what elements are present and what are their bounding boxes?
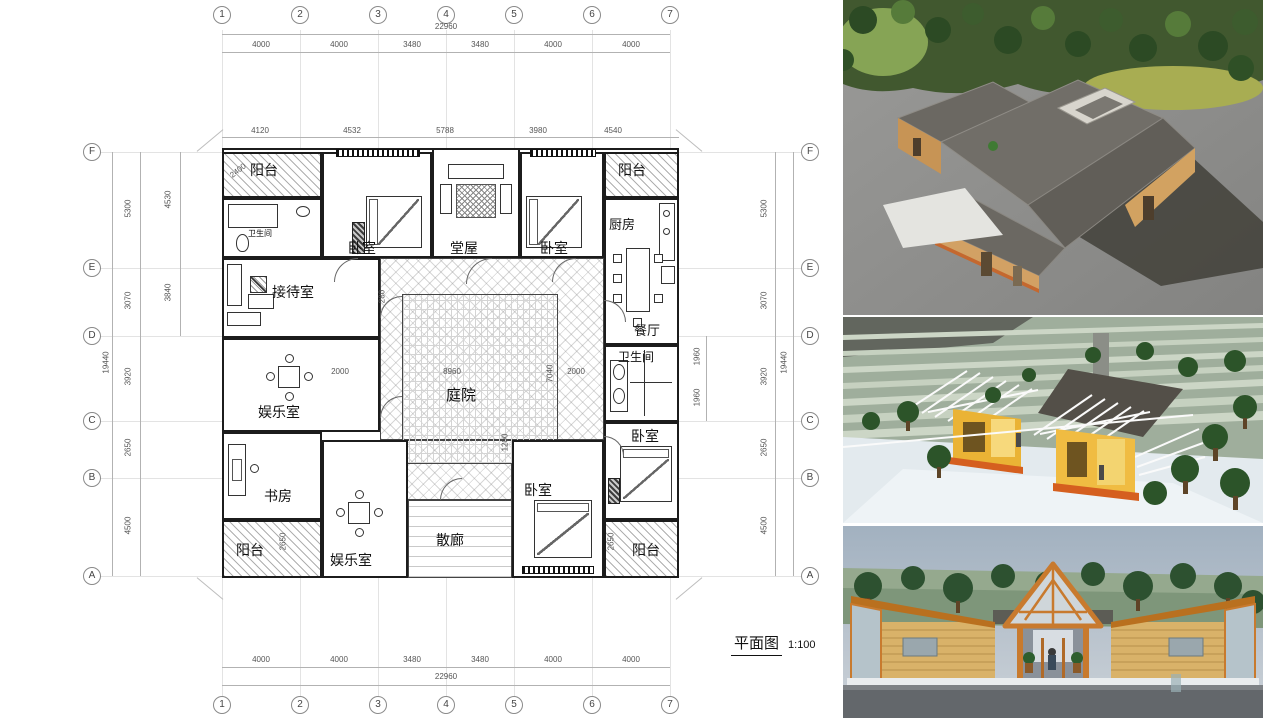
chair: [285, 392, 294, 401]
dim-line: [793, 152, 794, 576]
desk: [228, 444, 246, 496]
kitchen-sink: [661, 266, 675, 284]
chair: [374, 508, 383, 517]
grid-bubble-top-1: 1: [213, 6, 231, 24]
dim-top-seg: 4000: [319, 40, 359, 49]
grid-bubble-bottom-1: 1: [213, 696, 231, 714]
chair: [336, 508, 345, 517]
drawing-title: 平面图: [731, 632, 782, 656]
dim-top-inner: 4532: [332, 126, 372, 135]
room-label-bath-tl: 卫生间: [248, 228, 272, 239]
elevation-render-graphic: [843, 526, 1263, 718]
room-label-bedroom-ne: 卧室: [540, 238, 568, 258]
dim-line: [180, 152, 181, 336]
dim-top-inner: 5788: [425, 126, 465, 135]
window: [336, 149, 420, 157]
dim-line: [706, 336, 707, 421]
dim-courtyard-right: 2000: [556, 367, 596, 376]
dim-line: [222, 34, 670, 35]
grid-bubble-right-C: C: [801, 412, 819, 430]
dim-bottom-seg: 4000: [241, 655, 281, 664]
grid-bubble-top-3: 3: [369, 6, 387, 24]
room-label-balcony-bl: 阳台: [236, 540, 264, 560]
dim-top-seg: 3480: [392, 40, 432, 49]
grid-bubble-top-2: 2: [291, 6, 309, 24]
room-label-reception: 接待室: [272, 282, 314, 302]
coffee-table: [248, 294, 274, 309]
dim-top-inner: 3980: [518, 126, 558, 135]
chair: [285, 354, 294, 363]
dim-top-inner: 4120: [240, 126, 280, 135]
dim-line: [222, 137, 679, 138]
room-label-bedroom-e: 卧室: [631, 426, 659, 446]
sofa: [500, 184, 512, 214]
corner-tick: [197, 577, 224, 600]
room-label-study: 书房: [264, 486, 292, 506]
dim-right-seg: 5300: [760, 189, 769, 229]
dim-right-seg: 3070: [760, 281, 769, 321]
dim-top-seg: 3480: [460, 40, 500, 49]
dim-left-total: 19440: [102, 343, 111, 383]
dim-top-inner: 4540: [593, 126, 633, 135]
bath-partition: [630, 382, 672, 383]
dim-top-seg: 4000: [533, 40, 573, 49]
chair: [613, 254, 622, 263]
grid-bubble-bottom-5: 5: [505, 696, 523, 714]
dim-right-inner: 1960: [693, 337, 702, 377]
dim-line: [222, 52, 670, 53]
pavilion-render-graphic: [843, 317, 1263, 523]
sofa: [448, 164, 504, 179]
sink: [296, 206, 310, 217]
dim-right-seg: 2650: [760, 428, 769, 468]
dim-courtyard-top: 280: [378, 277, 387, 317]
dim-line: [222, 685, 670, 686]
dim-line: [222, 667, 670, 668]
dim-right-seg: 3920: [760, 357, 769, 397]
room-label-dining: 餐厅: [634, 320, 660, 339]
dim-left-seg: 5300: [124, 189, 133, 229]
dim-line: [775, 152, 776, 576]
room-label-corridor: 散廊: [436, 530, 464, 550]
chair: [355, 490, 364, 499]
dim-bottom-seg: 4000: [611, 655, 651, 664]
dim-courtyard-width: 8960: [432, 367, 472, 376]
corner-tick: [197, 129, 224, 152]
grid-bubble-right-B: B: [801, 469, 819, 487]
window: [522, 566, 594, 574]
room-label-balcony-br: 阳台: [632, 540, 660, 560]
dim-left-seg: 3070: [124, 281, 133, 321]
grid-bubble-left-A: A: [83, 567, 101, 585]
dim-left-seg: 2650: [124, 428, 133, 468]
sofa: [440, 184, 452, 214]
rug: [608, 478, 620, 504]
grid-bubble-left-D: D: [83, 327, 101, 345]
chair: [654, 254, 663, 263]
room-label-bedroom-nw: 卧室: [348, 238, 376, 258]
burner: [663, 210, 670, 217]
render-front-elevation: [843, 526, 1263, 718]
grid-bubble-left-B: B: [83, 469, 101, 487]
presentation-sheet: 1 2 3 4 5 6 7 22960 4000 4000 3480 3480 …: [0, 0, 1280, 720]
sofa: [227, 264, 242, 306]
bed: [534, 500, 592, 558]
dim-bottom-seg: 3480: [392, 655, 432, 664]
game-table: [348, 502, 370, 524]
chair: [613, 274, 622, 283]
dim-left-inner: 4530: [164, 180, 173, 220]
courtyard-paving: [402, 294, 558, 464]
room-label-balcony-tr: 阳台: [618, 160, 646, 180]
dim-right-inner: 1960: [693, 378, 702, 418]
room-label-kitchen: 厨房: [609, 214, 635, 233]
grid-bubble-bottom-2: 2: [291, 696, 309, 714]
bed: [620, 446, 672, 502]
dim-courtyard-left: 2000: [320, 367, 360, 376]
dim-bottom-total: 22960: [426, 672, 466, 681]
grid-bubble-bottom-4: 4: [437, 696, 455, 714]
grid-bubble-bottom-3: 3: [369, 696, 387, 714]
render-timber-frame-pavilions: [843, 317, 1263, 523]
chair: [304, 372, 313, 381]
room-label-game-w: 娱乐室: [258, 402, 300, 422]
chair: [250, 464, 259, 473]
hall-rug: [456, 184, 496, 218]
tv-cabinet: [250, 276, 267, 293]
grid-bubble-right-E: E: [801, 259, 819, 277]
room-label-bath-e: 卫生间: [618, 348, 654, 365]
sink: [613, 364, 625, 380]
dim-right-seg: 4500: [760, 506, 769, 546]
dim-line: [140, 152, 141, 576]
grid-bubble-bottom-6: 6: [583, 696, 601, 714]
shower: [228, 204, 278, 228]
dim-right-total: 19440: [780, 343, 789, 383]
aerial-render-graphic: [843, 0, 1263, 315]
sofa: [227, 312, 261, 326]
room-label-hall: 堂屋: [450, 238, 478, 258]
room-label-courtyard: 庭院: [446, 384, 476, 405]
chair: [654, 294, 663, 303]
dim-top-seg: 4000: [611, 40, 651, 49]
grid-bubble-right-F: F: [801, 143, 819, 161]
chair: [266, 372, 275, 381]
corner-tick: [676, 577, 703, 600]
dim-bottom-seg: 4000: [319, 655, 359, 664]
grid-bubble-right-D: D: [801, 327, 819, 345]
sink: [613, 388, 625, 404]
chair: [355, 528, 364, 537]
dim-bottom-seg: 3480: [460, 655, 500, 664]
render-aerial-courtyard-house: [843, 0, 1263, 315]
window: [530, 149, 596, 157]
game-table: [278, 366, 300, 388]
room-label-game-s: 娱乐室: [330, 550, 372, 570]
corner-tick: [676, 129, 703, 152]
dim-left-seg: 4500: [124, 506, 133, 546]
grid-bubble-top-5: 5: [505, 6, 523, 24]
grid-bubble-left-C: C: [83, 412, 101, 430]
grid-bubble-bottom-7: 7: [661, 696, 679, 714]
room-game-w: [222, 338, 380, 432]
dim-balcony-br: 2650: [607, 522, 616, 562]
dim-top-seg: 4000: [241, 40, 281, 49]
burner: [663, 228, 670, 235]
dim-left-seg: 3920: [124, 357, 133, 397]
dim-top-total: 22960: [426, 22, 466, 31]
grid-bubble-top-7: 7: [661, 6, 679, 24]
dim-balcony-bl: 2650: [279, 522, 288, 562]
floor-plan-drawing: 1 2 3 4 5 6 7 22960 4000 4000 3480 3480 …: [0, 0, 840, 720]
dim-left-inner: 3840: [164, 273, 173, 313]
grid-bubble-left-E: E: [83, 259, 101, 277]
dim-bottom-seg: 4000: [533, 655, 573, 664]
dim-line: [112, 152, 113, 576]
drawing-scale: 1:100: [788, 639, 816, 651]
grid-bubble-left-F: F: [83, 143, 101, 161]
drawing-title-block: 平面图1:100: [731, 632, 816, 656]
dim-courtyard-bottom: 1200: [501, 423, 510, 463]
grid-bubble-right-A: A: [801, 567, 819, 585]
grid-bubble-top-6: 6: [583, 6, 601, 24]
room-label-bedroom-s: 卧室: [524, 480, 552, 500]
dim-courtyard-height: 7040: [546, 354, 555, 394]
dining-table: [626, 248, 650, 312]
